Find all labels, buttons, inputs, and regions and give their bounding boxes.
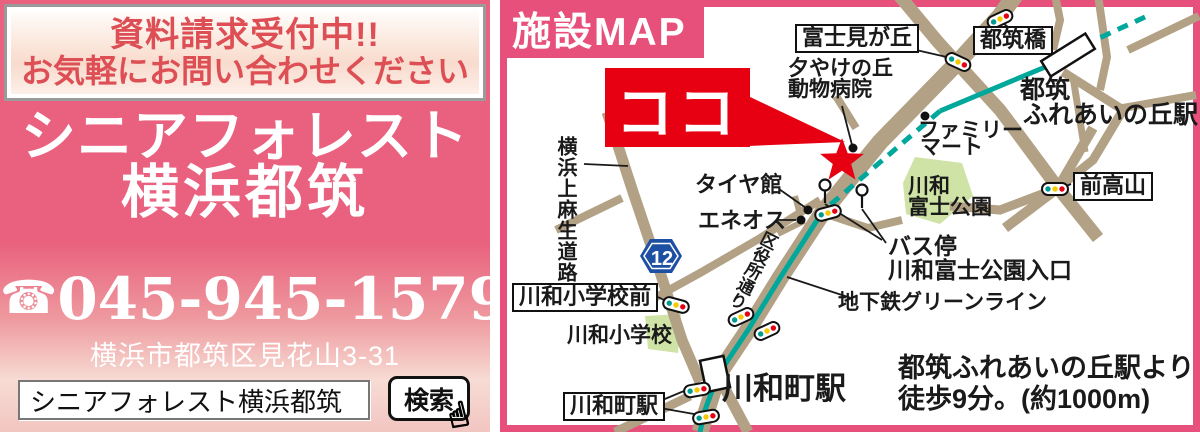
route-12-badge-number: 12 bbox=[641, 246, 683, 273]
label-tsuzukibashi: 都筑橋 bbox=[973, 26, 1053, 55]
map-title-banner: 施設MAP bbox=[500, 0, 704, 58]
map-panel: 施設MAP ココ 富士見が丘 都筑橋 夕やけの丘 動物病院 都筑 ふれあいの丘駅… bbox=[500, 0, 1200, 432]
facility-title-line1: シニアフォレスト bbox=[0, 108, 490, 163]
label-tsuzuki-station-line2: ふれあいの丘駅 bbox=[1023, 103, 1198, 128]
label-park-line1: 川和 bbox=[908, 176, 950, 197]
label-kawawa-shogakko: 川和小学校 bbox=[567, 325, 672, 346]
label-maetakayama: 前高山 bbox=[1073, 172, 1153, 201]
flyer: 資料請求受付中!! お気軽にお問い合わせください シニアフォレスト 横浜都筑 ☎… bbox=[0, 0, 1200, 432]
notice-line2: お気軽にお問い合わせください bbox=[21, 54, 469, 90]
label-fujimigaoka: 富士見が丘 bbox=[795, 24, 919, 53]
label-yokohama-kamiasao-road: 横浜上麻生道路 bbox=[555, 136, 575, 283]
notice-box: 資料請求受付中!! お気軽にお問い合わせください bbox=[4, 4, 486, 101]
here-label: ココ bbox=[605, 68, 750, 147]
label-kawawacho-eki-big: 川和町駅 bbox=[722, 373, 846, 404]
walk-note-line1: 都筑ふれあいの丘駅より bbox=[898, 355, 1194, 382]
label-yuyake-line2: 動物病院 bbox=[788, 79, 872, 100]
notice-line1: 資料請求受付中!! bbox=[110, 16, 380, 54]
label-tsuzuki-station-line1: 都筑 bbox=[1020, 78, 1070, 103]
phone-number: 045-945-1579 bbox=[57, 265, 509, 333]
label-busstop-line2: 川和富士公園入口 bbox=[888, 259, 1072, 282]
label-kawawa-shogakko-mae: 川和小学校前 bbox=[512, 283, 658, 312]
label-tireshop: タイヤ館 bbox=[695, 174, 782, 196]
ad-panel: 資料請求受付中!! お気軽にお問い合わせください シニアフォレスト 横浜都筑 ☎… bbox=[0, 0, 490, 432]
search-input[interactable]: シニアフォレスト横浜都筑 bbox=[18, 380, 370, 420]
telephone-icon: ☎ bbox=[0, 271, 57, 323]
label-yuyake-line1: 夕やけの丘 bbox=[788, 58, 893, 79]
search-row: シニアフォレスト横浜都筑 検索 ☝ bbox=[0, 374, 490, 424]
facility-title: シニアフォレスト 横浜都筑 bbox=[0, 108, 490, 221]
phone-row: ☎045-945-1579 bbox=[0, 265, 490, 333]
label-kawawacho-eki-boxed: 川和町駅 bbox=[563, 392, 665, 421]
facility-title-line2: 横浜都筑 bbox=[0, 163, 490, 221]
label-park-line2: 富士公園 bbox=[908, 197, 992, 218]
label-busstop-line1: バス停 bbox=[888, 235, 957, 258]
label-familymart-line2: マート bbox=[920, 137, 983, 158]
label-eneos: エネオス bbox=[698, 210, 786, 232]
search-button[interactable]: 検索 bbox=[388, 376, 470, 421]
label-subway-greenline: 地下鉄グリーンライン bbox=[838, 292, 1047, 313]
walk-note-line2: 徒歩9分。(約1000m) bbox=[898, 386, 1150, 413]
address: 横浜市都筑区見花山3-31 bbox=[0, 334, 490, 373]
